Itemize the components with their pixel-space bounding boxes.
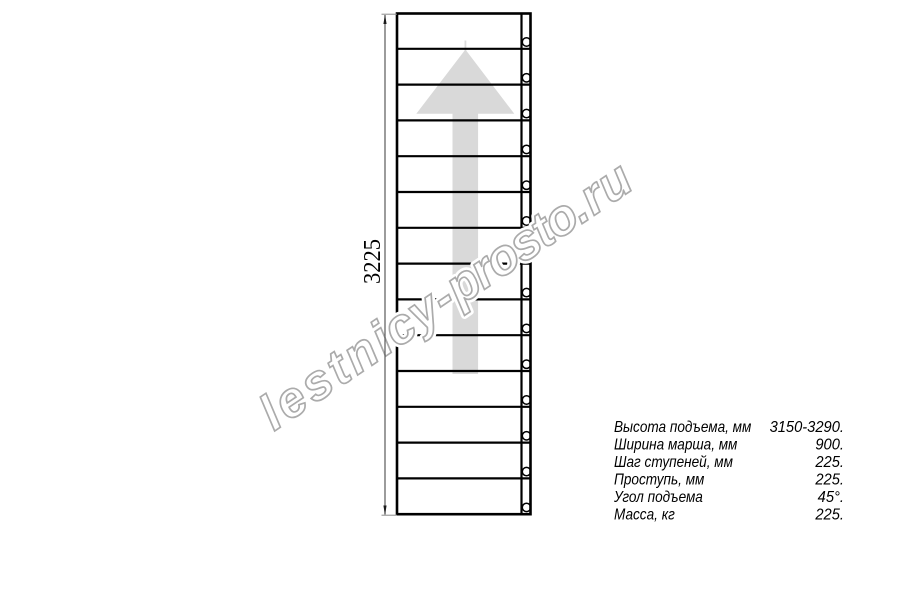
svg-text:45°.: 45°.	[818, 488, 844, 506]
svg-text:Высота подъема, мм: Высота подъема, мм	[614, 419, 751, 436]
svg-text:Масса, кг: Масса, кг	[614, 507, 675, 524]
svg-text:Ширина марша, мм: Ширина марша, мм	[614, 437, 737, 454]
svg-text:3150-3290.: 3150-3290.	[770, 418, 844, 436]
svg-text:Шаг ступеней, мм: Шаг ступеней, мм	[614, 454, 733, 471]
svg-text:900.: 900.	[815, 436, 844, 454]
svg-text:225.: 225.	[814, 453, 844, 471]
svg-text:225.: 225.	[814, 471, 844, 489]
svg-text:3225: 3225	[360, 239, 386, 284]
svg-text:Угол подъема: Угол подъема	[613, 489, 703, 506]
svg-text:225.: 225.	[814, 506, 844, 524]
svg-text:Проступь, мм: Проступь, мм	[614, 472, 704, 489]
